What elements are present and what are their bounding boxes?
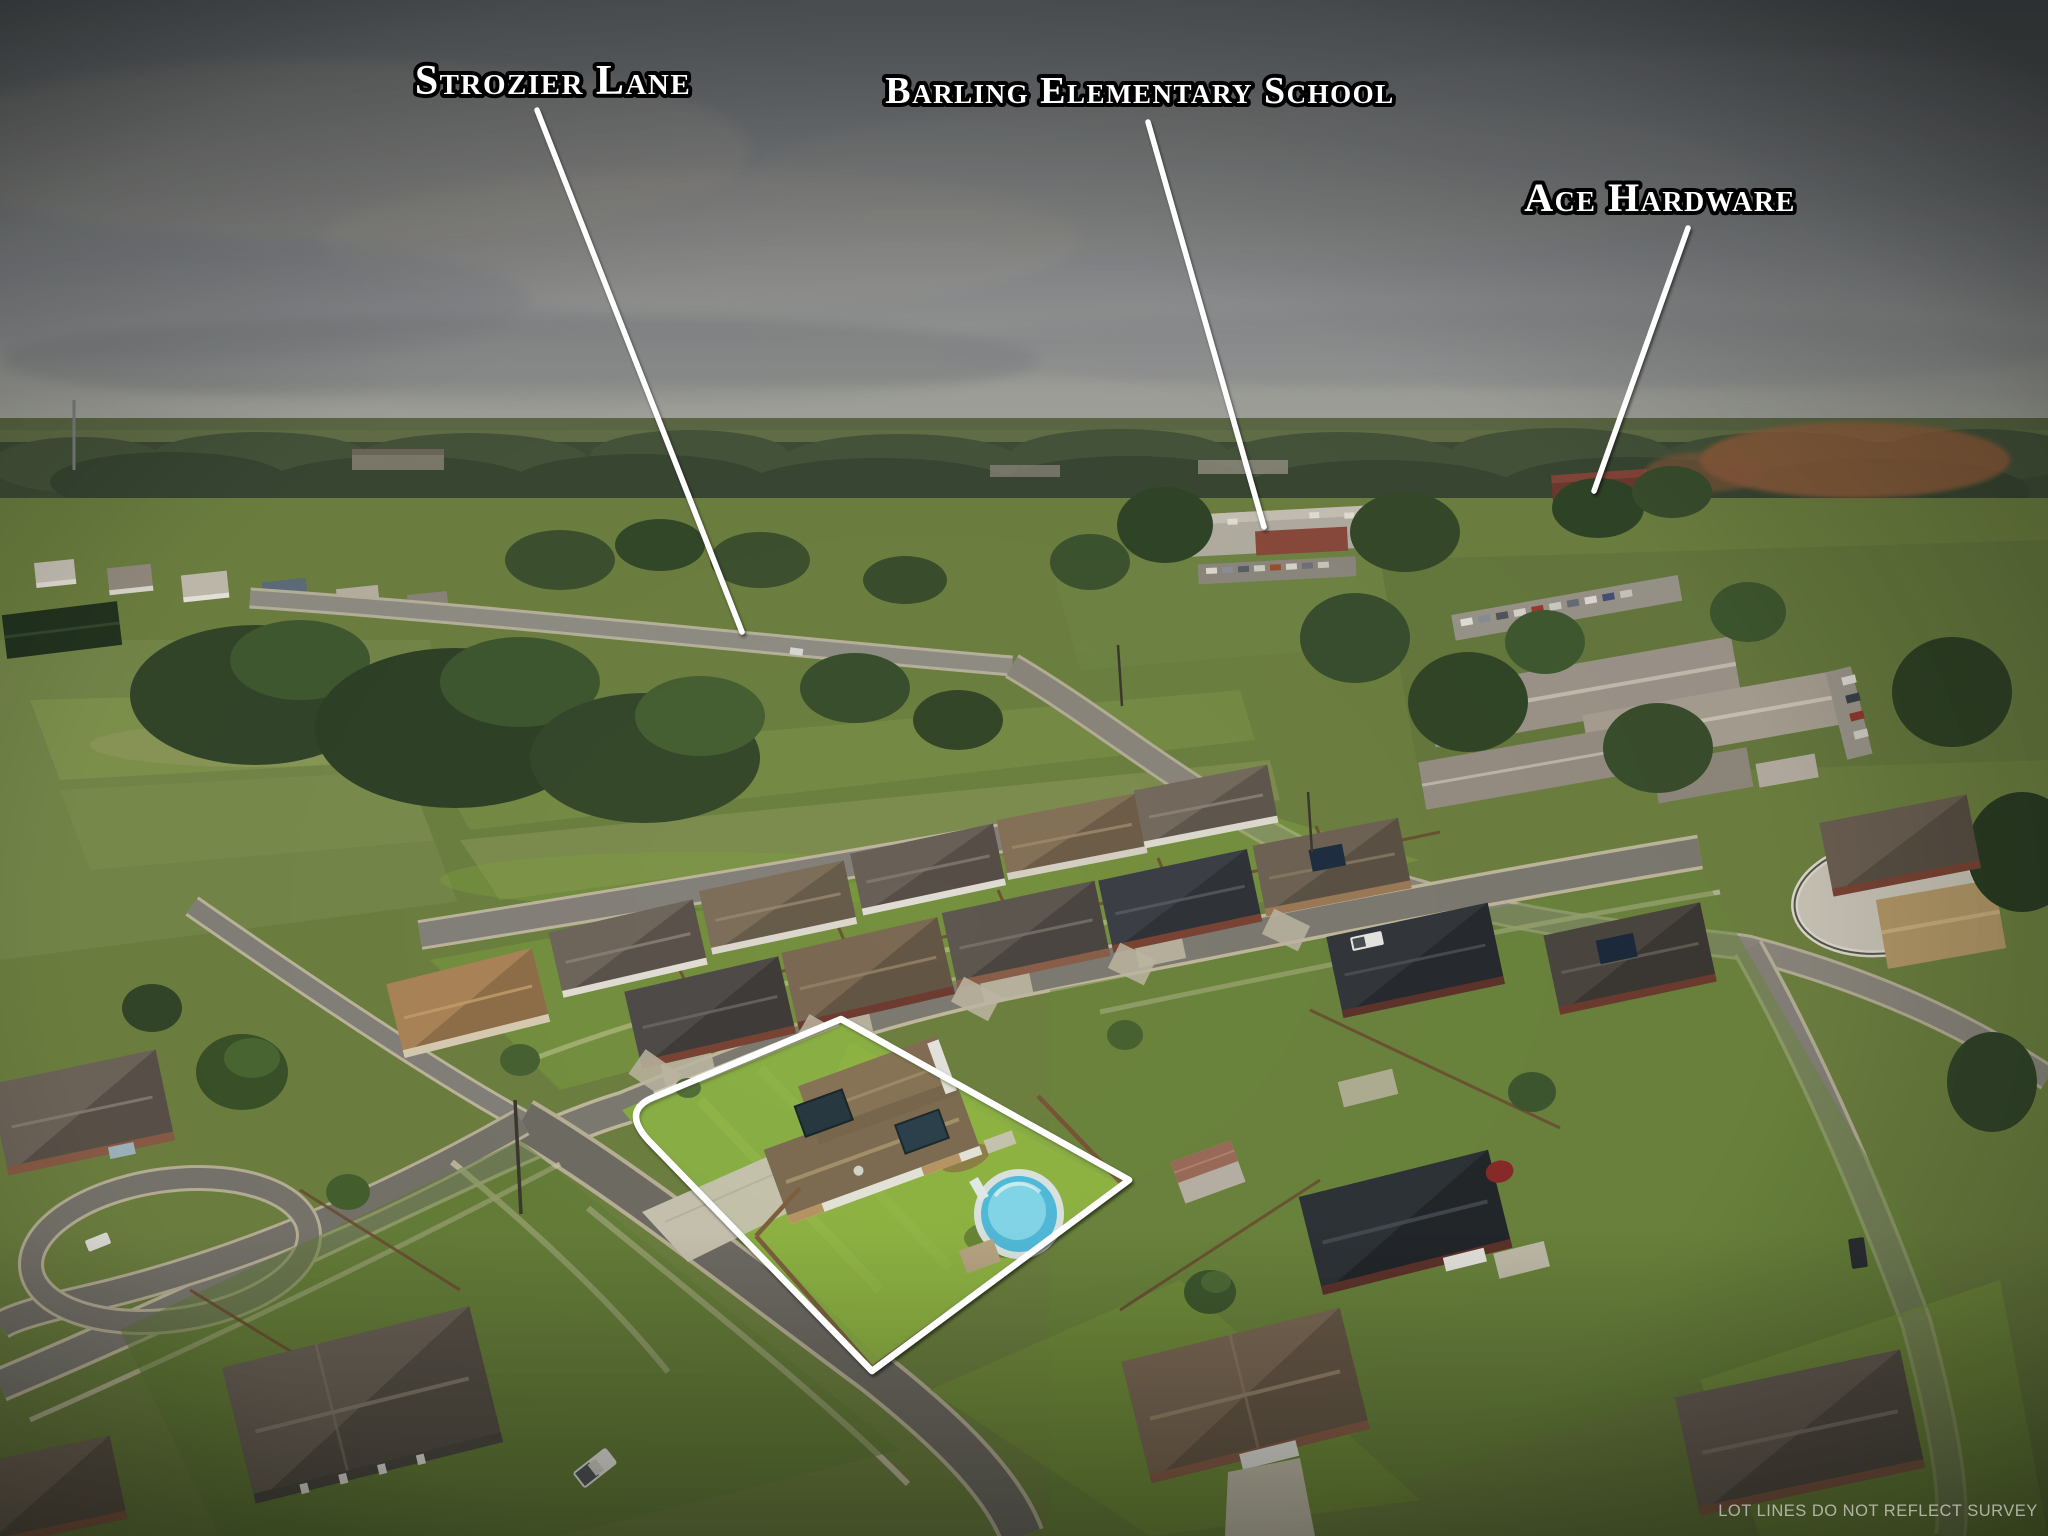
- disclaimer-text: LOT LINES DO NOT REFLECT SURVEY: [1718, 1502, 2038, 1520]
- label-barling-elementary-school: Barling Elementary School: [885, 70, 1394, 112]
- label-ace-hardware: Ace Hardware: [1524, 175, 1796, 220]
- label-strozier-lane: Strozier Lane: [415, 58, 691, 104]
- bottom-shade: [0, 1230, 2048, 1536]
- aerial-photo-canvas: Strozier Lane Barling Elementary School …: [0, 0, 2048, 1536]
- aerial-photo: Strozier Lane Barling Elementary School …: [0, 0, 2048, 1536]
